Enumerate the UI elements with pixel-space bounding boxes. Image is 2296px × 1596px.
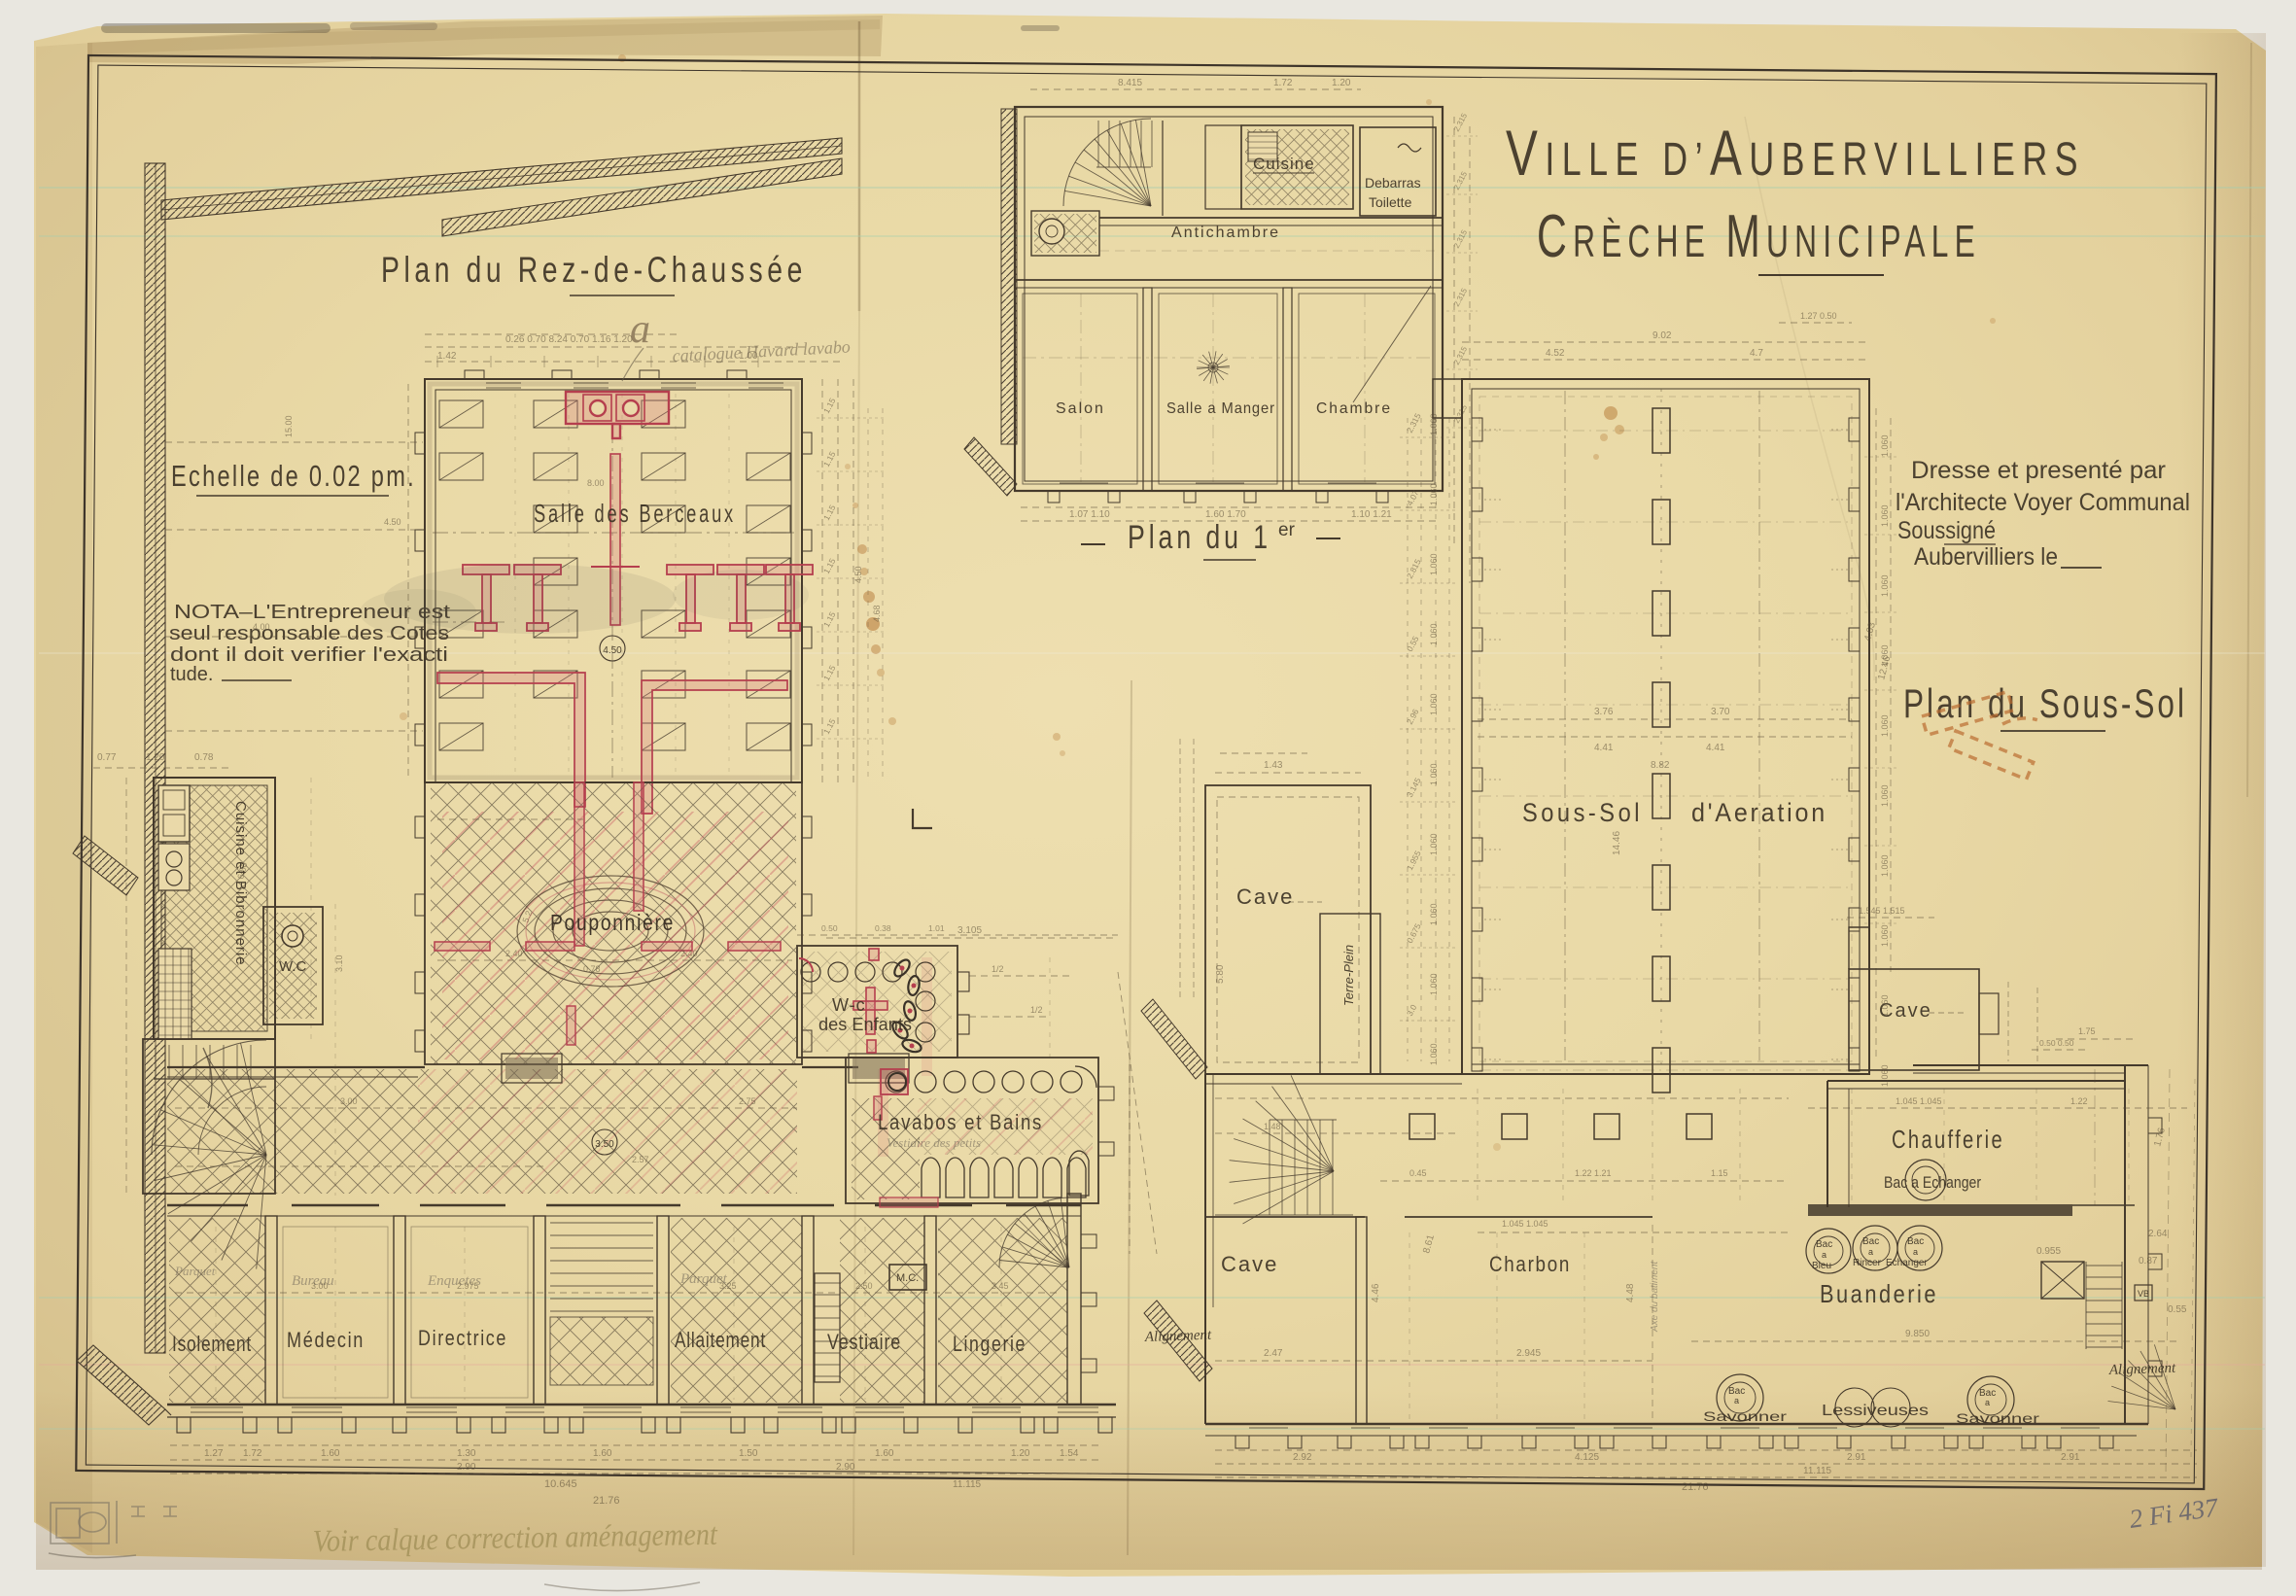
svg-text:W.C: W.C	[279, 958, 306, 975]
svg-text:8.00: 8.00	[587, 478, 605, 488]
svg-text:2.75: 2.75	[739, 1096, 756, 1106]
svg-text:1.27: 1.27	[204, 1448, 224, 1459]
svg-text:4.48: 4.48	[1625, 1283, 1636, 1302]
svg-text:1.545 1.515: 1.545 1.515	[1859, 906, 1905, 916]
svg-text:Aubervilliers le: Aubervilliers le	[1914, 543, 2058, 571]
svg-text:1.60: 1.60	[321, 1448, 340, 1459]
svg-text:21.76: 21.76	[593, 1495, 620, 1507]
svg-text:Chambre: Chambre	[1316, 400, 1392, 417]
svg-text:a: a	[630, 307, 650, 352]
svg-text:des Enfants: des Enfants	[818, 1015, 912, 1034]
svg-text:1.30: 1.30	[457, 1448, 476, 1459]
svg-text:1.060: 1.060	[1880, 784, 1890, 807]
svg-text:Sous-Sol: Sous-Sol	[1522, 798, 1643, 827]
svg-text:1.060: 1.060	[1429, 483, 1439, 505]
svg-text:1.060: 1.060	[1880, 994, 1890, 1017]
svg-text:1.22 1.21: 1.22 1.21	[1575, 1168, 1612, 1178]
svg-text:Salle des Berceaux: Salle des Berceaux	[534, 499, 736, 528]
svg-text:1.060: 1.060	[1880, 924, 1890, 947]
svg-text:1.07 1.10: 1.07 1.10	[1069, 509, 1110, 520]
svg-text:1.060: 1.060	[1880, 1064, 1890, 1087]
svg-text:1.060: 1.060	[1429, 1043, 1439, 1065]
svg-text:1.060: 1.060	[1880, 434, 1890, 457]
svg-text:1.60: 1.60	[875, 1448, 894, 1459]
svg-text:Alignement: Alignement	[1144, 1328, 1213, 1345]
svg-text:1.060: 1.060	[1429, 763, 1439, 785]
svg-text:3.70: 3.70	[1711, 707, 1730, 717]
svg-text:1.20: 1.20	[1332, 78, 1351, 88]
svg-text:1.060: 1.060	[1429, 903, 1439, 925]
svg-text:1.15: 1.15	[1711, 1168, 1728, 1178]
svg-text:Allaitement: Allaitement	[675, 1328, 766, 1352]
svg-text:Bac: Bac	[1907, 1236, 1924, 1247]
svg-text:1.60: 1.60	[593, 1448, 612, 1459]
svg-text:W-c: W-c	[832, 995, 866, 1015]
svg-text:1.54: 1.54	[1060, 1448, 1079, 1459]
svg-text:1.060: 1.060	[1880, 644, 1890, 667]
svg-text:0.78: 0.78	[194, 752, 214, 763]
svg-text:1.50: 1.50	[739, 1448, 758, 1459]
svg-text:0.50 0.50: 0.50 0.50	[2039, 1038, 2074, 1048]
svg-text:1.045 1.045: 1.045 1.045	[1896, 1096, 1942, 1106]
svg-text:2.90: 2.90	[836, 1462, 855, 1473]
svg-text:Bleu: Bleu	[1812, 1261, 1831, 1271]
svg-text:Cave: Cave	[1236, 885, 1294, 909]
svg-text:VB: VB	[2138, 1289, 2149, 1299]
svg-text:2.91: 2.91	[1847, 1452, 1866, 1463]
svg-text:Savonner: Savonner	[1956, 1410, 2039, 1426]
svg-text:2.47: 2.47	[1264, 1348, 1283, 1359]
svg-text:0.955: 0.955	[2036, 1246, 2061, 1257]
svg-text:3.76: 3.76	[1594, 707, 1614, 717]
svg-text:Parquet: Parquet	[174, 1264, 216, 1278]
svg-text:Buanderie: Buanderie	[1820, 1279, 1938, 1308]
svg-text:Plan du Sous-Sol: Plan du Sous-Sol	[1903, 680, 2187, 726]
svg-text:1.22: 1.22	[2070, 1096, 2088, 1106]
svg-text:4.41: 4.41	[1706, 743, 1725, 753]
svg-text:2.64: 2.64	[2148, 1229, 2168, 1239]
svg-text:0.45: 0.45	[1409, 1168, 1427, 1178]
svg-text:2.40: 2.40	[505, 949, 523, 958]
svg-text:0.78: 0.78	[583, 964, 601, 974]
svg-text:Antichambre: Antichambre	[1171, 225, 1280, 241]
svg-text:Rincer: Rincer	[1853, 1258, 1882, 1268]
svg-text:3.00: 3.00	[340, 1096, 358, 1106]
svg-text:9.02: 9.02	[1652, 330, 1672, 341]
svg-text:2.50: 2.50	[855, 1281, 873, 1291]
svg-text:Cuisine et Bibronnerie: Cuisine et Bibronnerie	[232, 801, 249, 966]
svg-text:Cuisine: Cuisine	[1253, 155, 1315, 173]
svg-text:Toilette: Toilette	[1369, 194, 1412, 210]
svg-text:1.72: 1.72	[243, 1448, 262, 1459]
svg-text:1.060: 1.060	[1880, 714, 1890, 737]
svg-text:tude.: tude.	[170, 664, 213, 685]
svg-text:4.68: 4.68	[872, 605, 882, 622]
svg-text:4.41: 4.41	[1594, 743, 1614, 753]
svg-text:0.55: 0.55	[2168, 1304, 2187, 1315]
svg-text:4.125: 4.125	[1575, 1452, 1599, 1463]
svg-text:Plan du 1: Plan du 1	[1128, 519, 1271, 556]
svg-text:Vestiaire des petits: Vestiaire des petits	[887, 1135, 981, 1150]
svg-text:9.850: 9.850	[1905, 1329, 1930, 1339]
svg-text:0.50: 0.50	[821, 923, 838, 933]
svg-text:3.50: 3.50	[595, 1139, 614, 1150]
svg-text:2.92: 2.92	[1293, 1452, 1312, 1463]
svg-text:er: er	[1278, 520, 1296, 540]
svg-text:0.77: 0.77	[97, 752, 117, 763]
svg-text:Lingerie: Lingerie	[953, 1332, 1026, 1356]
svg-text:1.060: 1.060	[1880, 574, 1890, 597]
svg-text:1.42: 1.42	[437, 351, 457, 362]
svg-text:dont il doit verifier l'exacti: dont il doit verifier l'exacti	[170, 644, 448, 666]
svg-text:1.20: 1.20	[1011, 1448, 1030, 1459]
svg-text:1.060: 1.060	[1429, 553, 1439, 575]
svg-text:Plan du Rez-de-Chaussée: Plan du Rez-de-Chaussée	[381, 250, 807, 290]
svg-text:Terre-Plein: Terre-Plein	[1341, 945, 1356, 1006]
svg-text:Axe du batiment: Axe du batiment	[1650, 1261, 1660, 1333]
svg-text:2.40: 2.40	[680, 949, 698, 958]
svg-text:1.060: 1.060	[1880, 504, 1890, 527]
svg-text:2.975: 2.975	[457, 1281, 479, 1291]
svg-text:1.10 1.21: 1.10 1.21	[1351, 509, 1392, 520]
svg-text:1.72: 1.72	[1273, 78, 1293, 88]
svg-text:1.060: 1.060	[1429, 413, 1439, 435]
svg-text:Chaufferie: Chaufferie	[1892, 1125, 2004, 1154]
svg-text:10.645: 10.645	[544, 1478, 577, 1490]
svg-text:Salon: Salon	[1056, 400, 1105, 417]
svg-text:Cave: Cave	[1221, 1252, 1278, 1276]
svg-text:Vestiaire: Vestiaire	[827, 1330, 901, 1354]
svg-text:8.415: 8.415	[1118, 78, 1142, 88]
svg-text:Soussigné: Soussigné	[1897, 517, 1996, 544]
svg-text:4.50: 4.50	[853, 566, 863, 583]
svg-text:3.00: 3.00	[311, 1281, 329, 1291]
svg-text:M.C.: M.C.	[896, 1272, 919, 1284]
svg-text:Médecin: Médecin	[287, 1328, 365, 1352]
svg-text:Lessiveuses: Lessiveuses	[1822, 1403, 1929, 1419]
svg-text:4.7: 4.7	[1750, 348, 1763, 359]
svg-text:4.50: 4.50	[603, 645, 622, 656]
svg-text:a: a	[1985, 1398, 1990, 1407]
svg-text:2.90: 2.90	[457, 1462, 476, 1473]
svg-text:14.46: 14.46	[1612, 831, 1622, 855]
svg-text:1.060: 1.060	[1429, 693, 1439, 715]
svg-text:Pouponnière: Pouponnière	[550, 910, 675, 935]
svg-text:d'Aeration: d'Aeration	[1691, 798, 1827, 827]
svg-text:Salle a Manger: Salle a Manger	[1166, 400, 1275, 417]
svg-text:15.00: 15.00	[284, 415, 294, 437]
svg-text:3.25: 3.25	[719, 1281, 737, 1291]
svg-text:Echanger: Echanger	[1886, 1258, 1928, 1268]
svg-text:Voir calque correction aménage: Voir calque correction aménagement	[312, 1516, 718, 1558]
svg-text:0.87: 0.87	[2139, 1256, 2158, 1266]
svg-text:0.38: 0.38	[875, 923, 891, 933]
svg-text:2.945: 2.945	[1516, 1348, 1541, 1359]
svg-text:3.105: 3.105	[957, 925, 982, 936]
svg-text:1.27 0.50: 1.27 0.50	[1800, 311, 1837, 321]
svg-text:4.00: 4.00	[253, 622, 270, 632]
svg-text:a: a	[1734, 1396, 1739, 1405]
svg-text:a: a	[1913, 1247, 1918, 1257]
svg-text:Debarras: Debarras	[1365, 175, 1421, 191]
svg-text:Bac: Bac	[1862, 1236, 1879, 1247]
svg-text:l'Architecte Voyer Communal: l'Architecte Voyer Communal	[1896, 489, 2190, 516]
svg-text:4.46: 4.46	[1371, 1283, 1381, 1302]
svg-text:1.060: 1.060	[1429, 833, 1439, 855]
svg-text:Directrice: Directrice	[418, 1326, 507, 1350]
svg-text:Dresse et presenté par: Dresse et presenté par	[1911, 457, 2166, 484]
svg-text:Bac: Bac	[1816, 1239, 1832, 1250]
svg-text:1.01: 1.01	[928, 923, 945, 933]
svg-text:a: a	[1822, 1250, 1826, 1260]
svg-text:1/2: 1/2	[1030, 1005, 1043, 1015]
svg-text:4.50: 4.50	[384, 517, 401, 527]
svg-text:8.82: 8.82	[1651, 760, 1670, 771]
svg-text:5.80: 5.80	[1215, 964, 1226, 984]
svg-text:2.91: 2.91	[2061, 1452, 2080, 1463]
svg-text:4.52: 4.52	[1546, 348, 1565, 359]
svg-text:1/2: 1/2	[991, 964, 1004, 974]
svg-text:2.57: 2.57	[632, 1155, 649, 1164]
svg-text:1.060: 1.060	[1429, 623, 1439, 645]
svg-text:Isolement: Isolement	[172, 1332, 252, 1356]
svg-text:0.26 0.70 8.24 0.70 1.: 0.26 0.70 8.24 0.70 1.16 1.20	[505, 334, 633, 345]
svg-text:1.060: 1.060	[1429, 973, 1439, 995]
svg-text:a: a	[1868, 1247, 1873, 1257]
svg-text:Bac a Echanger: Bac a Echanger	[1884, 1173, 1981, 1192]
svg-text:1.43: 1.43	[1264, 760, 1283, 771]
svg-text:1.20: 1.20	[146, 752, 165, 763]
svg-text:11.115: 11.115	[953, 1479, 982, 1490]
svg-text:Alignement: Alignement	[2108, 1361, 2177, 1378]
svg-text:3.10: 3.10	[334, 954, 344, 972]
svg-text:11.115: 11.115	[1803, 1466, 1832, 1476]
svg-text:1.045 1.045: 1.045 1.045	[1502, 1219, 1548, 1229]
svg-text:3.45: 3.45	[991, 1281, 1009, 1291]
svg-text:Charbon: Charbon	[1489, 1252, 1571, 1276]
svg-text:21.76: 21.76	[1682, 1481, 1709, 1493]
svg-text:Echelle de 0.02 pm.: Echelle de 0.02 pm.	[171, 459, 416, 493]
svg-text:1.48: 1.48	[1264, 1122, 1281, 1131]
svg-text:1.060: 1.060	[1880, 854, 1890, 877]
svg-text:Savonner: Savonner	[1703, 1408, 1787, 1424]
svg-text:1.75: 1.75	[2078, 1026, 2096, 1036]
svg-text:Lavabos et Bains: Lavabos et Bains	[878, 1110, 1043, 1134]
